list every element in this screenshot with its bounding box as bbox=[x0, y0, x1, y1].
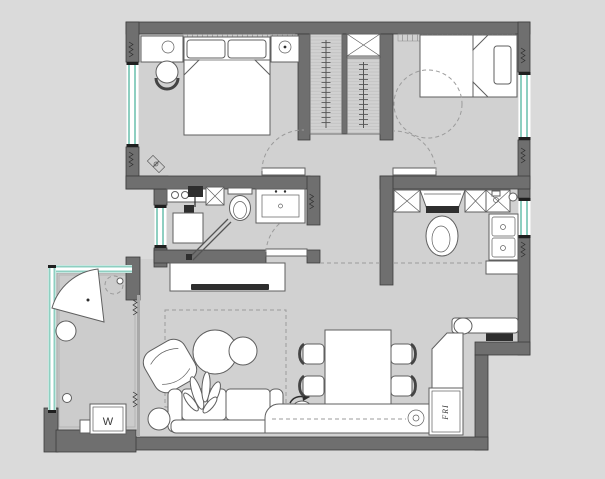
nightstand-right bbox=[271, 36, 299, 62]
wall-entry-step-v bbox=[475, 355, 488, 450]
pot bbox=[426, 216, 458, 256]
window-bedroom-left bbox=[127, 62, 139, 147]
window-bathroom bbox=[155, 205, 167, 248]
wall-closet-left bbox=[298, 34, 310, 140]
wall-corridor-left-post bbox=[307, 250, 320, 263]
window-kitchen bbox=[519, 198, 531, 238]
pillow bbox=[228, 40, 266, 58]
shoe-bench bbox=[265, 404, 430, 433]
wall-right-lower bbox=[518, 238, 530, 355]
wall-bathroom-bottom bbox=[154, 250, 266, 263]
double-bed bbox=[184, 37, 270, 135]
cooktop bbox=[426, 206, 459, 213]
dining-chair bbox=[300, 344, 325, 364]
pouf bbox=[56, 321, 76, 341]
washer-label: W bbox=[103, 416, 114, 428]
wall-left-upper bbox=[126, 22, 139, 62]
wall-kitchen-left bbox=[380, 176, 393, 285]
hand-shower bbox=[184, 205, 194, 213]
shower-mixer bbox=[188, 186, 203, 197]
storage-box bbox=[80, 420, 90, 433]
wall-corridor-left bbox=[307, 176, 320, 225]
window-bedroom-right bbox=[519, 72, 531, 140]
floor-plan: FRI W bbox=[0, 0, 605, 479]
wall-top bbox=[126, 22, 530, 34]
double-sink bbox=[489, 214, 518, 260]
wall-bedrooms-bottom-right bbox=[380, 176, 530, 189]
floor-plan-drawing: FRI W bbox=[0, 0, 605, 479]
wall-fixture bbox=[509, 193, 517, 201]
coffee-table-small bbox=[229, 337, 257, 365]
double-bed bbox=[420, 35, 517, 97]
wall-bottom bbox=[132, 437, 488, 450]
wall-entry-step-h bbox=[475, 342, 530, 355]
fridge: FRI bbox=[429, 388, 463, 435]
duct-shaft bbox=[347, 34, 380, 56]
tv bbox=[191, 284, 269, 290]
base-cabinet bbox=[486, 190, 510, 212]
entry-door bbox=[486, 333, 513, 341]
vanity-basin bbox=[256, 189, 305, 223]
toilet bbox=[228, 188, 252, 221]
sofa-cushion bbox=[226, 389, 270, 420]
wall-bath-left-a bbox=[154, 189, 167, 205]
base-cabinet bbox=[465, 190, 486, 212]
dining-chair bbox=[300, 376, 325, 396]
fridge-label: FRI bbox=[441, 404, 450, 420]
shower-tray bbox=[173, 213, 203, 243]
pillow bbox=[187, 40, 225, 58]
washing-machine: W bbox=[90, 404, 126, 434]
base-cabinet bbox=[394, 190, 420, 212]
console-lamp bbox=[454, 318, 472, 334]
wall-closet-right bbox=[380, 34, 393, 140]
wall-closet-divider bbox=[342, 34, 347, 134]
wall-right-upper bbox=[518, 22, 530, 72]
balcony-partition-glass bbox=[137, 295, 140, 437]
wall-living-left-stub bbox=[126, 257, 140, 300]
low-cabinet bbox=[486, 261, 518, 274]
duct-shaft bbox=[206, 187, 224, 205]
pillow bbox=[494, 46, 511, 84]
wardrobe-left bbox=[310, 34, 342, 134]
dining-chair bbox=[391, 344, 416, 364]
dining-table bbox=[325, 330, 391, 414]
side-table bbox=[148, 408, 170, 430]
dining-chair bbox=[391, 376, 416, 396]
exterior-notch bbox=[139, 189, 155, 259]
faucet bbox=[492, 191, 500, 196]
wall-fixture bbox=[63, 394, 72, 403]
wardrobe-right bbox=[347, 58, 380, 134]
